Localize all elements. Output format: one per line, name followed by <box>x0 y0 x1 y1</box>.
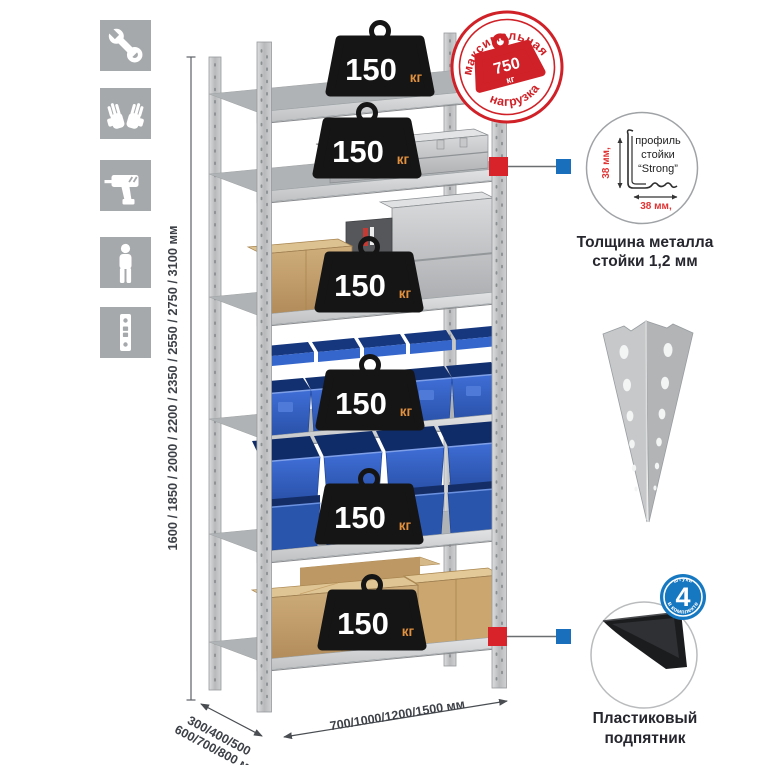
badge-unit: кг <box>402 624 415 639</box>
drill-icon <box>100 160 151 211</box>
badge-value: 150 <box>332 134 384 169</box>
badge-unit: кг <box>410 70 423 85</box>
person-icon <box>100 237 151 288</box>
badge-unit: кг <box>399 518 412 533</box>
connector-bottom <box>488 627 571 646</box>
badge-value: 150 <box>337 606 389 641</box>
badge-value: 150 <box>335 386 387 421</box>
profile-dim-horizontal: 38 мм, <box>640 201 672 212</box>
badge-unit: кг <box>399 286 412 301</box>
profile-label-1: профиль <box>635 135 681 147</box>
badge-value: 150 <box>334 268 386 303</box>
post-front-left <box>257 42 272 712</box>
profile-caption-line1: Толщина металла <box>577 234 714 251</box>
profile-label-3: “Strong” <box>638 163 678 175</box>
foot-caption-line1: Пластиковый <box>593 710 698 727</box>
small-bins-back-row <box>266 326 498 366</box>
profile-dim-vertical: 38 мм, <box>601 147 612 179</box>
gloves-icon <box>100 88 151 139</box>
red-marker-square <box>488 627 507 646</box>
corner-post-photo <box>603 321 693 522</box>
depth-dimension: 300/400/500 600/700/800 мм <box>172 704 266 765</box>
quantity-badge: 4 штуки в комплекте <box>660 574 706 620</box>
badge-unit: кг <box>397 152 410 167</box>
profile-detail-circle: 38 мм, 38 мм, профиль стойки “Strong” <box>587 113 698 224</box>
load-badge-1: 150 кг <box>330 23 430 93</box>
red-marker-square <box>489 157 508 176</box>
width-dimension: 700/1000/1200/1500 мм <box>284 697 507 737</box>
profile-strip-icon <box>100 307 151 358</box>
sidebar-icons <box>100 20 151 358</box>
foot-caption-line2: подпятник <box>604 730 685 747</box>
badge-unit: кг <box>400 404 413 419</box>
post-back-left <box>209 57 221 690</box>
quantity-badge-value: 4 <box>675 582 690 612</box>
height-label: 1600 / 1850 / 2000 / 2200 / 2350 / 2550 … <box>165 226 180 551</box>
wrench-icon <box>100 20 151 71</box>
max-load-stamp: 750 кг максимальная нагрузка <box>440 0 575 134</box>
profile-caption-line2: стойки 1,2 мм <box>592 253 697 270</box>
shelving-infographic: 1600 / 1850 / 2000 / 2200 / 2350 / 2550 … <box>0 0 765 765</box>
height-dimension: 1600 / 1850 / 2000 / 2200 / 2350 / 2550 … <box>165 57 196 700</box>
badge-value: 150 <box>334 500 386 535</box>
badge-value: 150 <box>345 52 397 87</box>
load-badge-4: 150 кг <box>320 357 420 427</box>
blue-marker-square <box>556 159 571 174</box>
width-label: 700/1000/1200/1500 мм <box>329 697 466 733</box>
profile-label-2: стойки <box>641 149 675 161</box>
blue-marker-square <box>556 629 571 644</box>
connector-top <box>489 157 571 176</box>
